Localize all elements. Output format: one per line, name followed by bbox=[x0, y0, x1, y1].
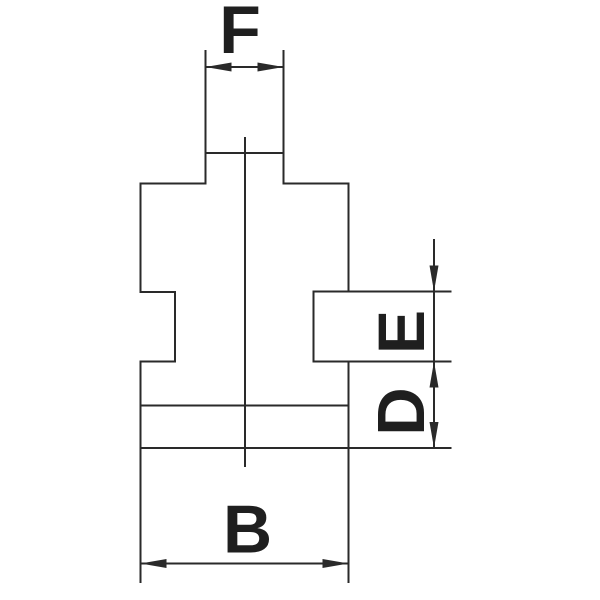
svg-text:F: F bbox=[219, 0, 261, 68]
svg-text:E: E bbox=[364, 310, 438, 354]
svg-text:D: D bbox=[364, 387, 439, 435]
svg-text:B: B bbox=[223, 492, 272, 568]
